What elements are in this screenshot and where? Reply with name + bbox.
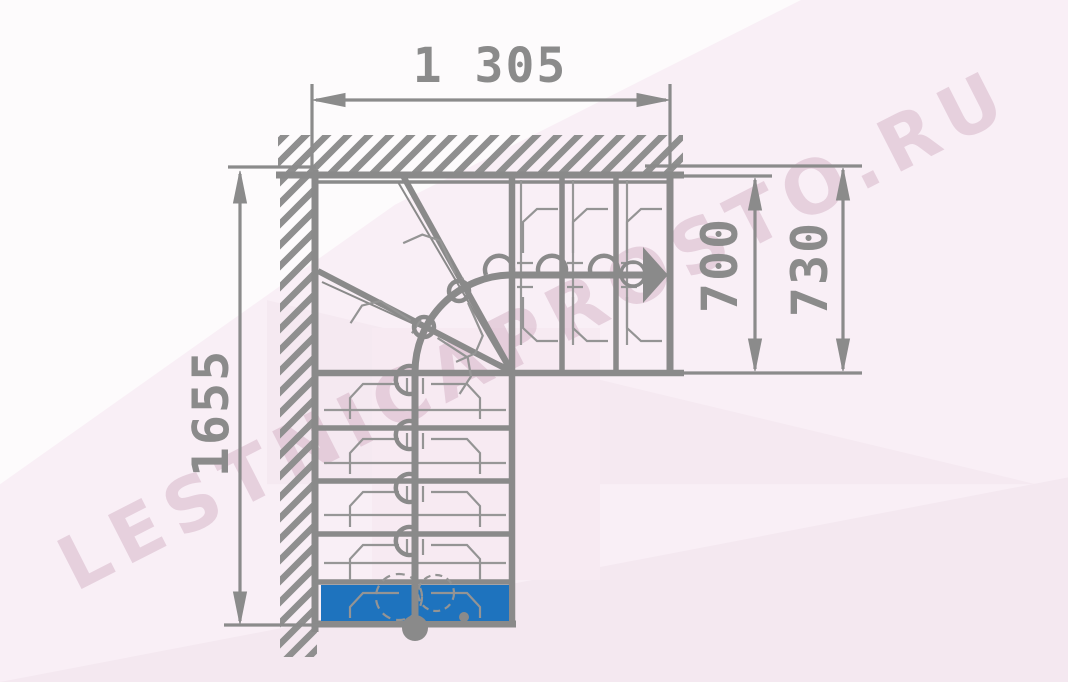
stair-plan-drawing	[0, 0, 1068, 682]
walk-start-marker-icon	[402, 615, 428, 641]
stair-plan-page: LESTNICAPROSTO.RU	[0, 0, 1068, 682]
walk-line	[415, 275, 643, 620]
wall-hatch-left	[280, 135, 317, 657]
dim-label-going-width-outer: 730	[781, 221, 839, 317]
walk-line-dot	[459, 612, 469, 622]
winder-risers	[318, 174, 512, 372]
stair-outline	[317, 173, 684, 625]
wall-hatch-top	[278, 135, 683, 173]
dim-label-going-width: 700	[691, 217, 749, 313]
walk-direction-arrow-icon	[643, 247, 668, 303]
dim-label-top-width: 1 305	[413, 38, 568, 94]
dim-label-total-run: 1655	[182, 349, 240, 477]
